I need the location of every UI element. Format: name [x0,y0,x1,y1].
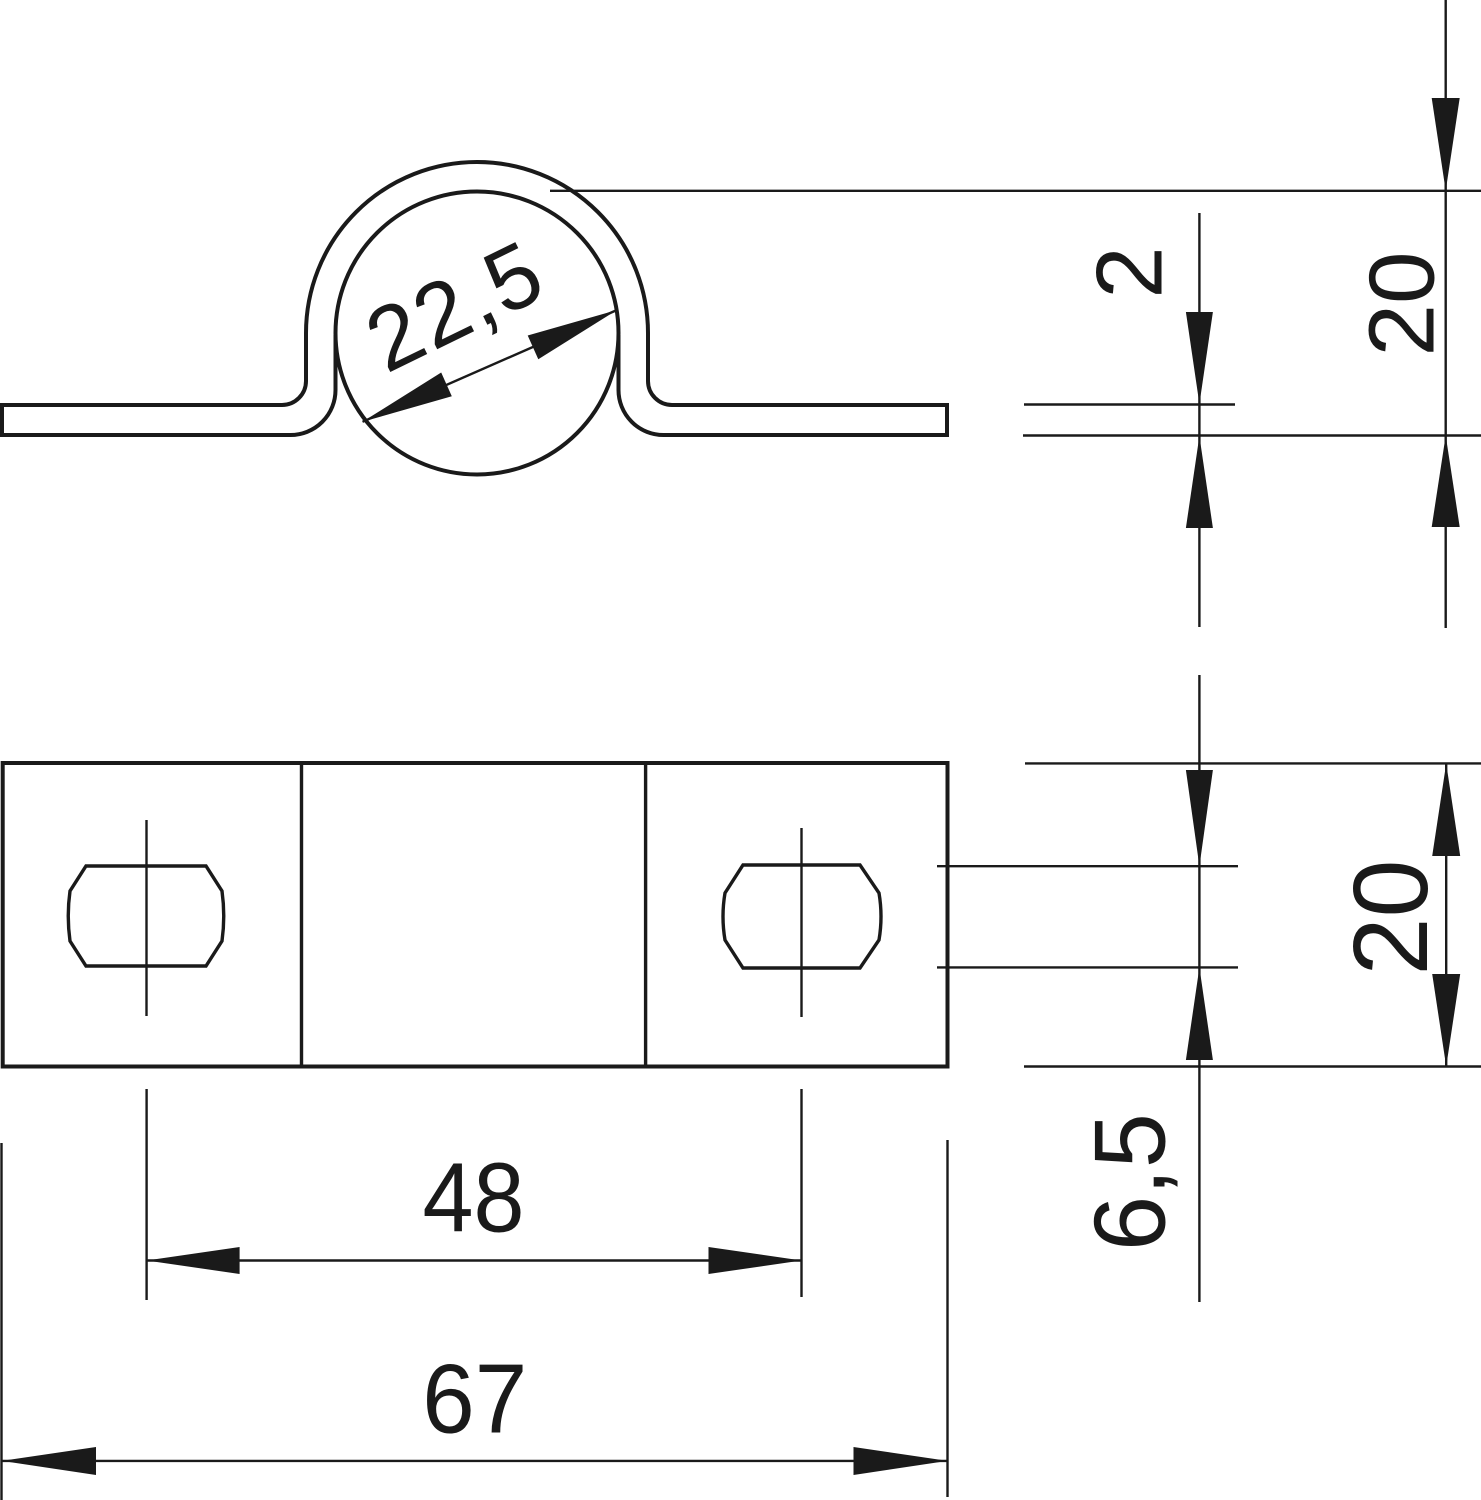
svg-text:48: 48 [423,1143,525,1253]
svg-text:20: 20 [1349,252,1453,357]
svg-text:2: 2 [1077,246,1182,298]
svg-text:20: 20 [1332,860,1450,976]
svg-text:6,5: 6,5 [1074,1113,1186,1251]
svg-text:67: 67 [422,1343,527,1453]
